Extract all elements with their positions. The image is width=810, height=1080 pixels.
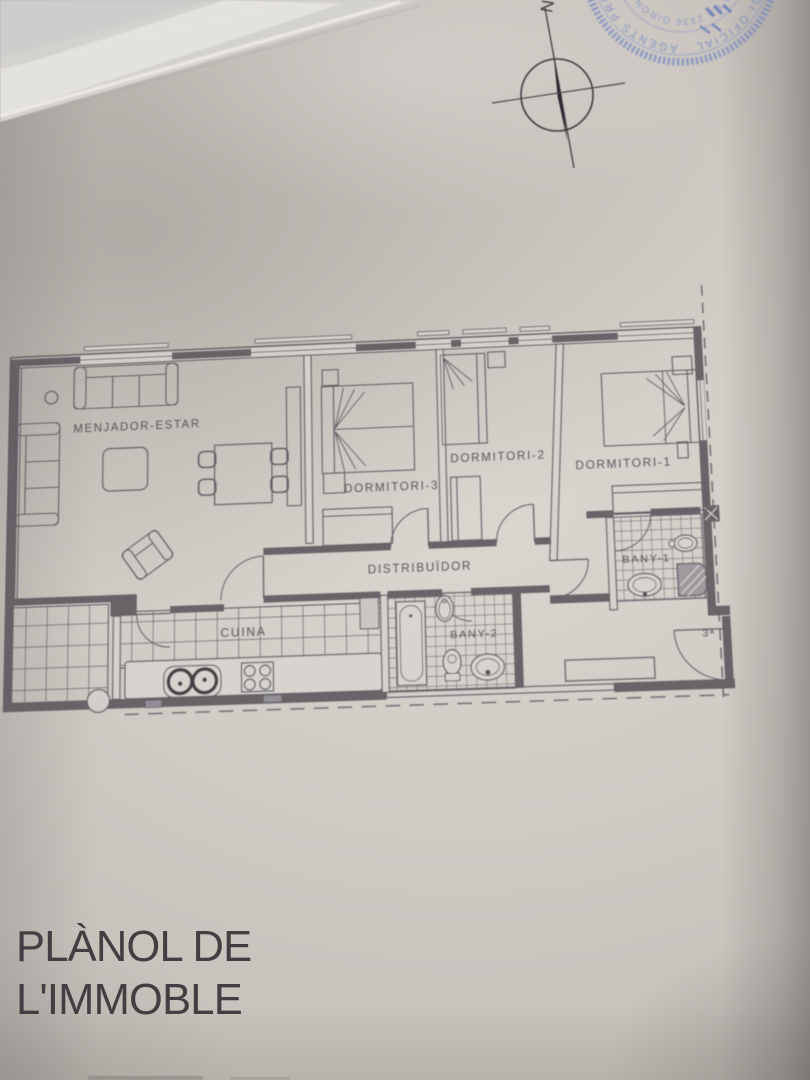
svg-text:COL·LEGI OFICIAL · AGENTS PROP: COL·LEGI OFICIAL · AGENTS PROPIETAT IMMO… bbox=[570, 0, 792, 77]
svg-text:CUINA: CUINA bbox=[220, 626, 266, 641]
svg-text:3ª: 3ª bbox=[702, 627, 716, 640]
svg-text:N: N bbox=[537, 0, 558, 14]
svg-text:DORMITORI-2: DORMITORI-2 bbox=[450, 449, 546, 466]
svg-text:DORMITORI-3: DORMITORI-3 bbox=[344, 479, 439, 495]
svg-text:MENJADOR-ESTAR: MENJADOR-ESTAR bbox=[73, 418, 200, 436]
svg-text:DISTRIBUÏDOR: DISTRIBUÏDOR bbox=[368, 560, 473, 577]
svg-text:DORMITORI-1: DORMITORI-1 bbox=[575, 456, 672, 473]
svg-text:BANY-2: BANY-2 bbox=[450, 628, 499, 642]
svg-text:BANY-1: BANY-1 bbox=[622, 552, 671, 566]
